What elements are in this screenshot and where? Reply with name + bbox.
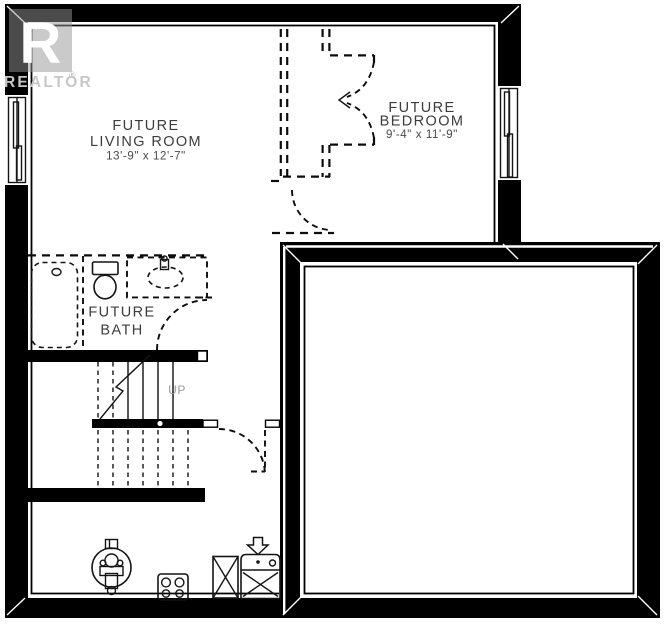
future-bedroom-walls bbox=[271, 29, 374, 233]
bedroom-door-swing bbox=[292, 190, 330, 230]
bathtub-icon bbox=[32, 263, 78, 348]
drain-dot bbox=[256, 560, 260, 564]
registered-trademark-symbol: ® bbox=[69, 70, 76, 80]
bath-line1: FUTURE bbox=[88, 305, 155, 321]
stove-icon bbox=[158, 574, 188, 600]
drain-arrow-icon bbox=[248, 538, 269, 555]
closet-double-door bbox=[339, 62, 374, 138]
stair-door-swing bbox=[219, 429, 265, 475]
furnace-icon bbox=[92, 540, 131, 595]
right-window bbox=[497, 86, 522, 180]
stair-wall bbox=[92, 419, 203, 428]
utility-sink-icon bbox=[241, 555, 280, 599]
sink-icon bbox=[148, 256, 183, 288]
living-room-dimensions: 13'-9" x 12'-7" bbox=[106, 151, 186, 163]
bedroom-label: FUTURE BEDROOM 9'-4" x 11'-9" bbox=[380, 100, 465, 141]
bedroom-line2: BEDROOM bbox=[380, 114, 465, 130]
living-room-line2: LIVING ROOM bbox=[90, 134, 202, 150]
bath-line2: BATH bbox=[100, 323, 143, 339]
left-window bbox=[4, 95, 29, 185]
laundry-tub-icon bbox=[213, 557, 238, 599]
bath-wall bbox=[28, 350, 208, 362]
bath-label: FUTURE BATH bbox=[88, 305, 155, 339]
realtor-watermark-text: REALTOR bbox=[4, 74, 93, 91]
living-room-label: FUTURE LIVING ROOM 13'-9" x 12'-7" bbox=[90, 118, 202, 163]
bath-door-swing bbox=[157, 300, 207, 350]
bedroom-dimensions: 9'-4" x 11'-9" bbox=[386, 129, 458, 141]
toilet-icon bbox=[93, 262, 119, 299]
stairs-up-label: UP bbox=[168, 383, 186, 397]
newel-marker bbox=[157, 421, 162, 426]
interior-walls bbox=[28, 350, 208, 502]
floor-plan: FUTURE LIVING ROOM 13'-9" x 12'-7" FUTUR… bbox=[0, 0, 672, 630]
vanity-counter bbox=[127, 257, 212, 297]
utility-wall bbox=[28, 488, 205, 502]
living-room-line1: FUTURE bbox=[112, 118, 179, 134]
floor-plan-svg: FUTURE LIVING ROOM 13'-9" x 12'-7" FUTUR… bbox=[0, 0, 672, 630]
realtor-logo-letter: R bbox=[20, 11, 62, 76]
